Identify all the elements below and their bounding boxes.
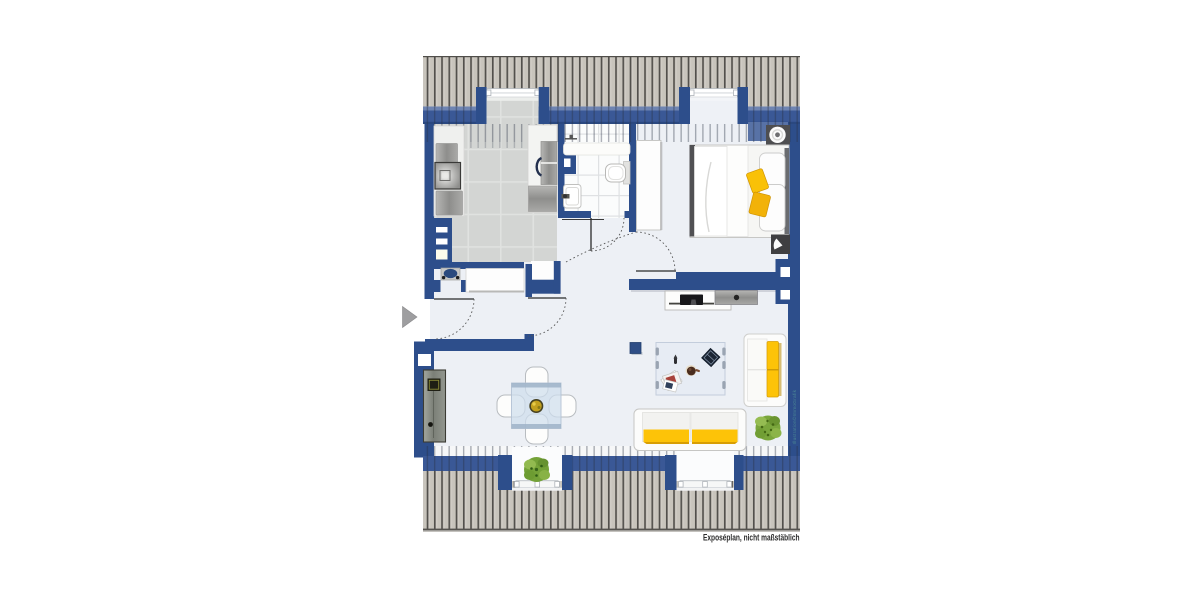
svg-text:Illustration©ImmoGrafik: Illustration©ImmoGrafik — [791, 389, 798, 444]
svg-text:Exposéplan, nicht maßstäblich: Exposéplan, nicht maßstäblich — [703, 532, 800, 543]
